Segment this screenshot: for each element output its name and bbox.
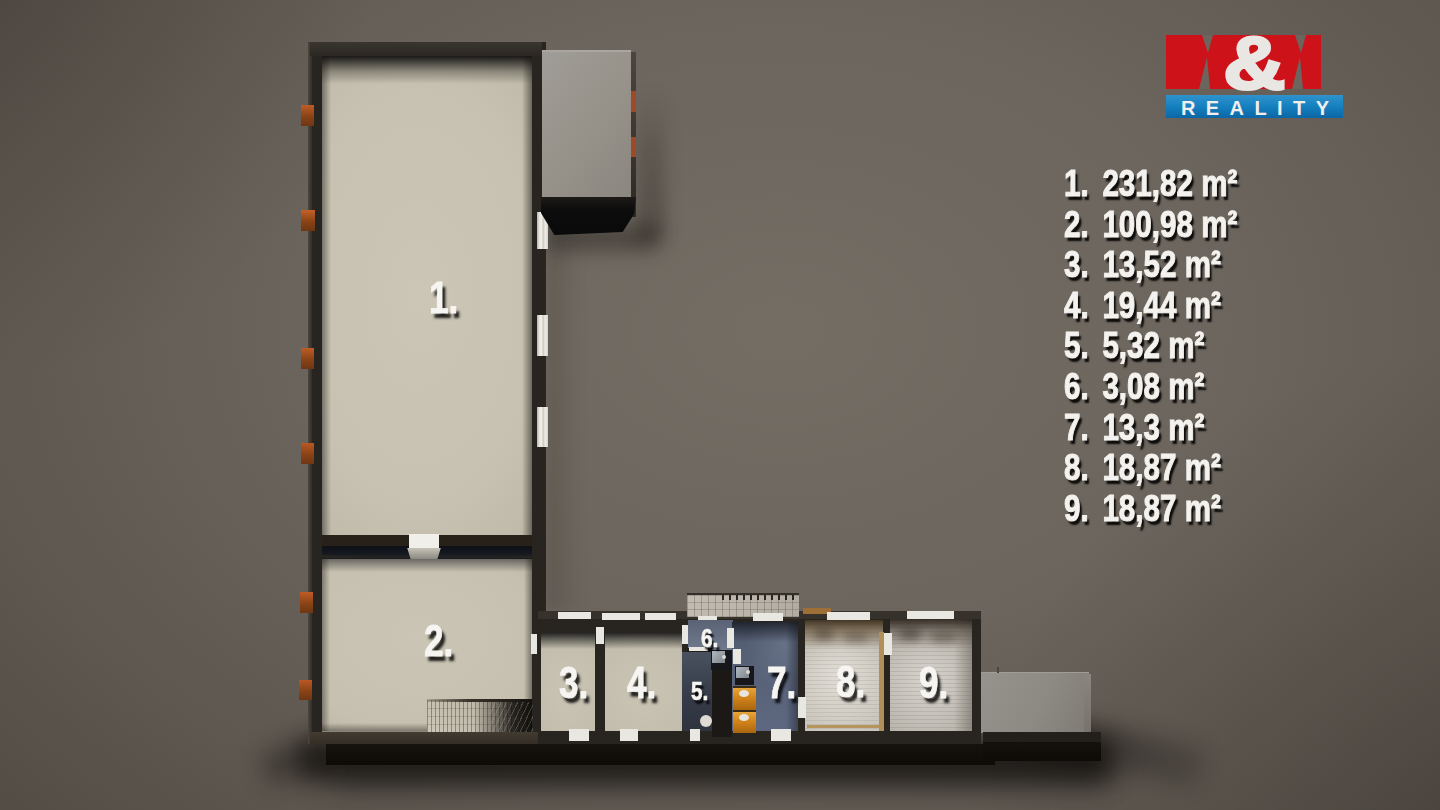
svg-text:&: &	[1223, 35, 1285, 105]
